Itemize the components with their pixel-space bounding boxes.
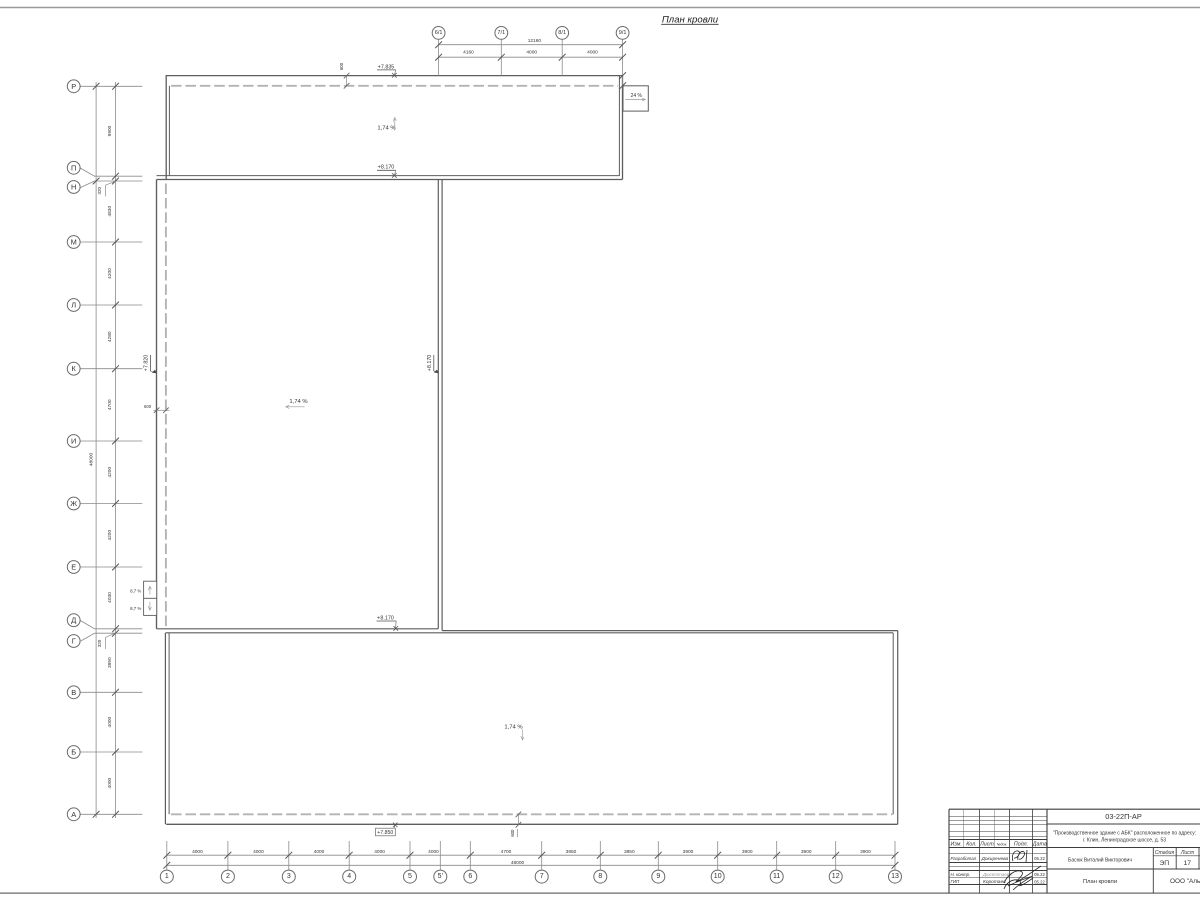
svg-text:12160: 12160 [528,38,542,44]
svg-text:3: 3 [287,873,291,880]
svg-text:Н: Н [71,183,76,192]
svg-text:Лист: Лист [979,842,994,848]
svg-text:№док.: №док. [997,842,1008,846]
svg-text:13: 13 [891,873,899,880]
svg-text:Лист: Лист [1180,850,1195,856]
svg-text:4000: 4000 [107,777,113,788]
svg-text:+8.170: +8.170 [377,615,394,621]
svg-text:+8.170: +8.170 [378,165,395,171]
svg-text:М: М [71,238,77,247]
svg-text:8: 8 [598,873,602,880]
svg-text:+7.850: +7.850 [377,830,393,836]
svg-text:4000: 4000 [374,849,385,855]
svg-text:Ж: Ж [70,499,77,508]
svg-text:48000: 48000 [88,453,94,467]
svg-text:600: 600 [339,62,344,70]
svg-text:3990: 3990 [107,657,113,668]
svg-text:Г: Г [72,637,76,646]
svg-text:6: 6 [468,873,472,880]
svg-text:Дюсеттаева: Дюсеттаева [982,872,1012,877]
svg-text:Н. контр.: Н. контр. [951,872,971,877]
svg-text:320: 320 [97,187,102,195]
svg-text:17: 17 [1184,860,1192,867]
svg-text:7/1: 7/1 [497,30,505,36]
svg-text:Л: Л [71,301,76,310]
svg-text:Р: Р [71,82,76,91]
svg-text:4200: 4200 [107,268,113,279]
svg-text:4830: 4830 [107,206,113,217]
svg-text:Басюк Виталий Викторович: Басюк Виталий Викторович [1068,857,1132,864]
svg-text:3850: 3850 [624,849,635,855]
svg-text:Стадия: Стадия [1155,850,1175,856]
svg-text:4: 4 [347,873,351,880]
svg-text:Коротаев: Коротаев [983,879,1006,885]
svg-text:2: 2 [226,873,230,880]
svg-text:г. Клин, Ленинградское шоссе,: г. Клин, Ленинградское шоссе, д. 53 [1083,837,1166,843]
svg-text:4700: 4700 [107,399,113,410]
svg-text:Дата: Дата [1032,842,1047,848]
svg-text:10: 10 [714,873,722,880]
svg-text:3900: 3900 [742,849,753,855]
svg-text:05.22: 05.22 [1034,856,1045,861]
svg-text:05.22: 05.22 [1034,879,1045,884]
svg-text:К: К [72,364,77,373]
svg-text:+7.835: +7.835 [378,64,395,70]
svg-text:3900: 3900 [860,849,871,855]
svg-text:План кровли: План кровли [662,14,719,25]
svg-text:Д: Д [71,616,76,625]
svg-text:Разработал: Разработал [951,856,977,861]
svg-text:ЭП: ЭП [1159,860,1169,867]
svg-text:5: 5 [408,873,412,880]
svg-text:В: В [71,688,76,697]
svg-text:12: 12 [832,873,840,880]
svg-text:4280: 4280 [107,331,113,342]
svg-text:11: 11 [773,873,780,880]
svg-text:Изм.: Изм. [951,842,962,848]
svg-text:4000: 4000 [314,849,325,855]
svg-text:03-22П-АР: 03-22П-АР [1105,812,1142,821]
svg-text:4000: 4000 [253,849,264,855]
svg-text:24 %: 24 % [631,93,643,99]
svg-text:4200: 4200 [107,530,113,541]
svg-text:4700: 4700 [501,849,512,855]
svg-text:"Производственное здание с АБК: "Производственное здание с АБК" располож… [1053,830,1196,836]
svg-text:4000: 4000 [192,849,203,855]
svg-text:8,7 %: 8,7 % [130,606,141,611]
svg-text:9/1: 9/1 [619,30,627,36]
svg-text:7: 7 [540,873,544,880]
svg-text:1,74 %: 1,74 % [504,725,523,731]
svg-text:4000: 4000 [587,50,598,56]
svg-text:320: 320 [97,639,102,647]
svg-text:8/1: 8/1 [558,30,566,36]
svg-text:9900: 9900 [107,125,113,136]
svg-text:Е: Е [71,563,76,572]
svg-text:48000: 48000 [511,860,525,866]
svg-text:4000: 4000 [107,716,113,727]
svg-text:1: 1 [165,873,169,880]
svg-text:4000: 4000 [428,849,439,855]
svg-text:План кровли: План кровли [1083,879,1117,885]
svg-text:Кол.: Кол. [966,842,976,848]
svg-text:5': 5' [438,873,443,880]
svg-text:4200: 4200 [107,467,113,478]
svg-text:600: 600 [144,404,152,409]
svg-text:4030: 4030 [107,592,113,603]
svg-text:05.22: 05.22 [1034,872,1045,877]
svg-text:3900: 3900 [683,849,694,855]
svg-text:+8.170: +8.170 [427,355,433,372]
svg-text:600: 600 [510,829,515,837]
svg-text:Докиренева: Докиренева [981,856,1009,862]
svg-text:ООО "Альянс": ООО "Альянс" [1170,878,1200,885]
svg-text:3850: 3850 [566,849,577,855]
svg-text:3900: 3900 [801,849,812,855]
svg-text:9: 9 [656,873,660,880]
svg-text:П: П [71,163,76,172]
svg-text:6/1: 6/1 [435,30,443,36]
svg-text:+7.820: +7.820 [143,355,149,372]
svg-text:Б: Б [71,748,76,757]
svg-text:Подл.: Подл. [1014,842,1028,848]
svg-text:1,74 %: 1,74 % [289,399,308,405]
svg-text:4000: 4000 [526,50,537,56]
svg-text:4160: 4160 [463,50,474,56]
svg-text:8,7 %: 8,7 % [130,589,141,594]
svg-text:1,74 %: 1,74 % [377,126,396,132]
svg-text:И: И [71,437,76,446]
svg-text:А: А [71,810,76,819]
svg-text:ГИП: ГИП [951,879,961,884]
